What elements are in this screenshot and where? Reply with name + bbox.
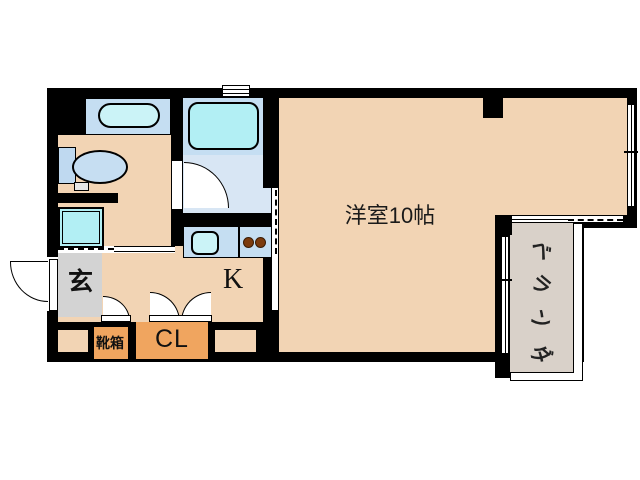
step-dashed-line — [58, 248, 114, 250]
floor-pocket-left — [58, 330, 88, 352]
kitchen-sink — [191, 231, 219, 255]
veranda-corner-block-right — [623, 215, 637, 228]
counter-divider — [238, 227, 240, 258]
louver-line — [223, 89, 249, 90]
washstand-basin — [98, 103, 160, 128]
toilet-bowl — [72, 150, 128, 184]
main-room-floor — [279, 215, 495, 352]
louver-line — [223, 93, 249, 94]
step-solid-line — [114, 246, 175, 252]
shoebox-label: 靴箱 — [96, 336, 124, 350]
sliding-window-rail — [512, 219, 568, 220]
sliding-door-kitchen — [271, 188, 279, 310]
window-cap — [502, 235, 508, 237]
bathroom-floor — [263, 188, 271, 213]
veranda-char: ン — [525, 301, 559, 336]
main-room-label: 洋室10帖 — [300, 205, 480, 227]
closet-door-leaf — [149, 315, 212, 322]
main-room-floor — [279, 98, 627, 215]
window-cap — [628, 103, 634, 105]
kitchen-label: K — [223, 266, 243, 294]
washroom-floor — [118, 193, 171, 246]
veranda-char: ラ — [525, 266, 559, 301]
entrance-door-leaf — [49, 259, 58, 311]
washing-machine-pan — [58, 207, 104, 248]
window-right-tick — [624, 151, 638, 153]
window-right — [627, 103, 635, 208]
veranda-left-wall-lower — [495, 362, 510, 378]
window-cap — [628, 206, 634, 208]
veranda-label: ベ ラ ン ダ — [510, 234, 574, 368]
veranda-corner-block-left — [495, 215, 512, 235]
washstand — [85, 98, 171, 135]
kitchen-counter — [183, 225, 272, 258]
toilet-flush-detail — [74, 182, 89, 191]
closet-label: CL — [155, 327, 189, 352]
window-glass-line — [631, 103, 632, 208]
stove-burner-left — [243, 237, 254, 248]
shoebox-door-leaf — [101, 315, 131, 322]
bathtub — [188, 102, 259, 150]
sliding-window-rail-dashed — [568, 219, 623, 221]
window-veranda-tick — [498, 279, 512, 281]
bathroom-door-leaf — [171, 160, 183, 210]
window-glass-line — [505, 235, 506, 355]
window-veranda-side — [501, 235, 509, 355]
sliding-window-veranda — [512, 215, 623, 223]
veranda-char: ダ — [525, 336, 559, 371]
entrance-label: 玄 — [68, 270, 93, 295]
floor-pocket-right — [215, 330, 256, 352]
stove-burner-right — [255, 237, 266, 248]
louver-window-top — [222, 85, 250, 97]
floor-plan: ベ ラ ン ダ 洋室10帖 K 玄 — [0, 0, 640, 480]
outside-area — [584, 228, 637, 362]
pan-inner-line — [62, 211, 100, 244]
sliding-door-dashed-track — [275, 190, 277, 254]
pillar — [483, 98, 503, 118]
entrance-door-arc — [10, 262, 48, 302]
window-cap — [502, 353, 508, 355]
veranda-char: ベ — [525, 231, 559, 266]
